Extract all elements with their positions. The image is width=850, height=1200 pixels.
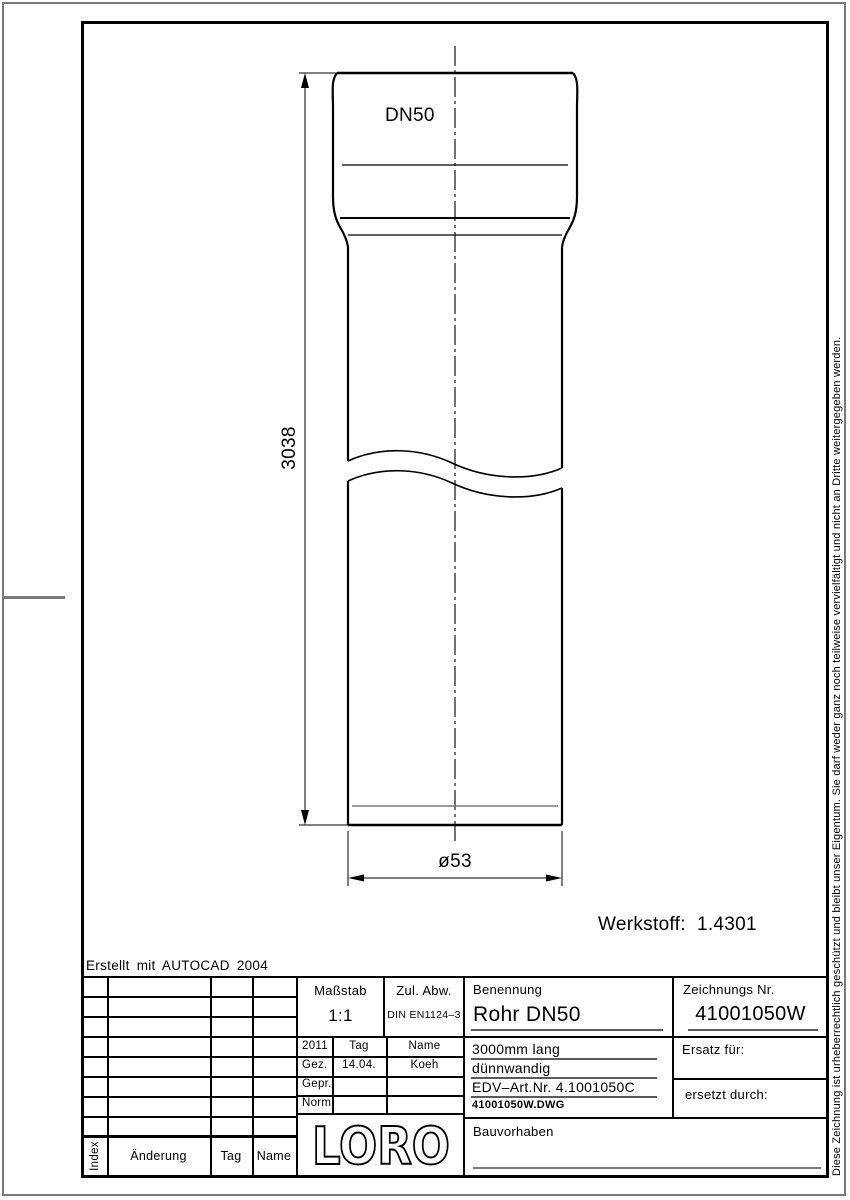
arrow-up-icon [301,73,309,88]
arrow-down-icon [301,810,309,825]
created-with-note: Erstellt mit AUTOCAD 2004 [86,958,268,973]
masstab-value: 1:1 [298,1006,383,1026]
revision-row-line [83,996,296,998]
revision-row-line [83,1056,296,1058]
zeichnungs-nr-label: Zeichnungs Nr. [683,982,775,997]
revision-row-line [83,1076,296,1078]
loro-logo: LORO [309,1119,453,1173]
approval-gepr-label: Gepr. [302,1078,332,1090]
bauvorhaben-underline [473,1167,821,1169]
diameter-dimension-label: ø53 [415,851,495,873]
ersetzt-durch-label: ersetzt durch: [685,1087,768,1102]
approval-gez-label: Gez. [302,1059,328,1071]
masstab-label: Maßstab [298,983,383,998]
revision-row-line [83,1096,296,1098]
masstab-cell: Maßstab 1:1 [296,976,385,1038]
revision-header-line [83,1135,296,1138]
drawing-sheet: DN50 3038 ø53 Werkstoff: 1.4301 Erstellt… [0,0,850,1200]
revision-row-line [83,1036,296,1038]
logo-cell: LORO [296,1113,465,1178]
arrow-right-icon [546,875,562,882]
loro-logo-text: LORO [312,1119,450,1173]
detail-edv-art-nr: EDV–Art.Nr. 4.1001050C [472,1079,635,1095]
benennung-label: Benennung [473,982,542,997]
approval-gez-name: Koeh [386,1059,463,1071]
approval-tag-header: Tag [332,1040,386,1052]
approval-table: 2011 Tag Name Gez. 14.04. Koeh Gepr. Nor… [296,1036,465,1115]
detail-length: 3000mm lang [472,1041,560,1057]
zul-abw-label: Zul. Abw. [385,983,463,998]
approval-row-line [298,1056,463,1058]
length-dimension-label: 3038 [279,408,301,488]
benennung-value: Rohr DN50 [473,1003,581,1027]
revision-header-tag: Tag [210,1149,252,1163]
revision-header-aenderung: Änderung [107,1149,210,1163]
approval-year: 2011 [302,1040,328,1052]
nominal-size-label: DN50 [385,105,435,127]
revision-row-line [83,1016,296,1018]
zeichnungs-nr-value: 41001050W [674,1003,827,1026]
bauvorhaben-cell: Bauvorhaben [463,1117,829,1178]
benennung-underline [471,1029,663,1031]
article-details-cell: 3000mm lang dünnwandig EDV–Art.Nr. 4.100… [463,1036,674,1119]
zeichnungs-nr-underline [688,1029,818,1031]
zul-abw-value: DIN EN1124–3 [385,1009,463,1021]
copyright-vertical-text: Diese Zeichnung ist urheberrechtlich ges… [831,308,845,1176]
detail-wall: dünnwandig [472,1060,551,1076]
revision-table: Index Änderung Tag Name [81,976,298,1178]
detail-dwg-filename: 41001050W.DWG [472,1099,565,1111]
detail-edv-underline [471,1096,657,1098]
bauvorhaben-label: Bauvorhaben [473,1124,554,1139]
material-note: Werkstoff: 1.4301 [598,914,757,936]
ersatz-fuer-cell: Ersatz für: [672,1036,829,1080]
zeichnungs-nr-cell: Zeichnungs Nr. 41001050W [672,976,829,1038]
revision-header-index: Index [89,1130,101,1182]
benennung-cell: Benennung Rohr DN50 [463,976,674,1038]
approval-gez-tag: 14.04. [332,1059,386,1071]
ersetzt-durch-cell: ersetzt durch: [672,1078,829,1119]
arrow-left-icon [348,875,364,882]
socket-right-wall [562,73,577,468]
revision-header-name: Name [252,1149,296,1163]
zul-abw-cell: Zul. Abw. DIN EN1124–3 [383,976,465,1038]
approval-name-header: Name [386,1040,463,1052]
socket-left-wall [333,73,348,461]
ersatz-fuer-label: Ersatz für: [682,1042,745,1057]
revision-row-line [83,1116,296,1118]
approval-norm-label: Norm. [302,1097,335,1109]
